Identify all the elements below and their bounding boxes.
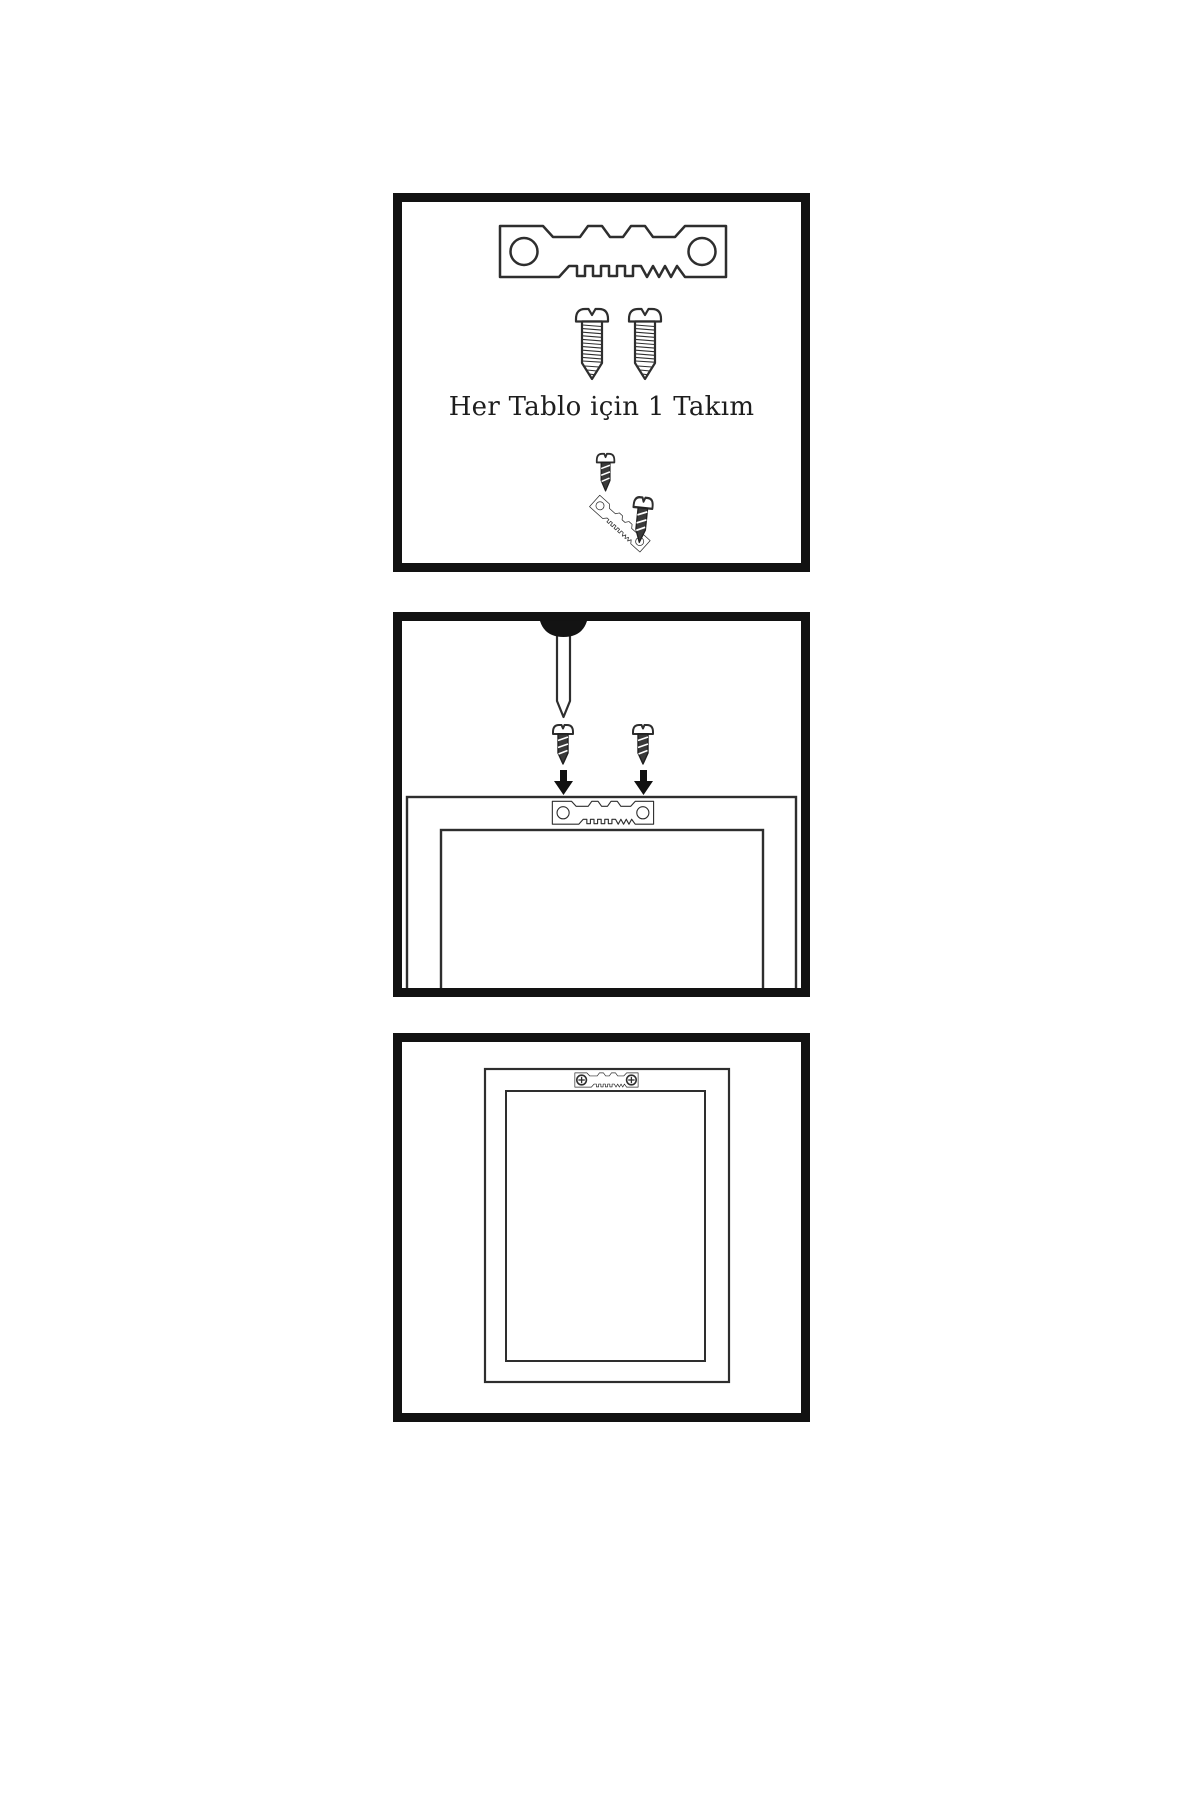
- hanging-kit-illustration: [402, 202, 801, 563]
- nail-head-icon: [540, 621, 587, 637]
- small-screw-icon: [553, 725, 573, 764]
- brand-logo: ENK WALL ART: [0, 1460, 1200, 1700]
- sawtooth-hanger-icon: [552, 801, 653, 824]
- frame-back-outer-edge: [485, 1069, 729, 1382]
- mounting-illustration: [402, 621, 801, 988]
- arrow-down-icon: [554, 770, 573, 795]
- step-3-panel: [393, 1033, 810, 1422]
- sawtooth-hanger-icon: [500, 226, 726, 277]
- arrow-down-icon: [634, 770, 653, 795]
- screw-icon: [629, 309, 661, 379]
- step-2-panel: [393, 612, 810, 997]
- step-1-panel: Her Tablo için 1 Takım: [393, 193, 810, 572]
- screw-icon: [576, 309, 608, 379]
- small-screw-icon: [597, 454, 615, 491]
- small-screw-icon: [633, 725, 653, 764]
- instruction-sheet: Her Tablo için 1 Takım: [0, 0, 1200, 1800]
- frame-back-inner-edge: [441, 830, 763, 988]
- frame-back-outer-edge: [407, 797, 796, 988]
- kit-caption: Her Tablo için 1 Takım: [402, 392, 801, 422]
- hung-frame-illustration: [402, 1042, 801, 1413]
- wall-nail-icon: [557, 630, 570, 717]
- frame-back-inner-edge: [506, 1091, 705, 1361]
